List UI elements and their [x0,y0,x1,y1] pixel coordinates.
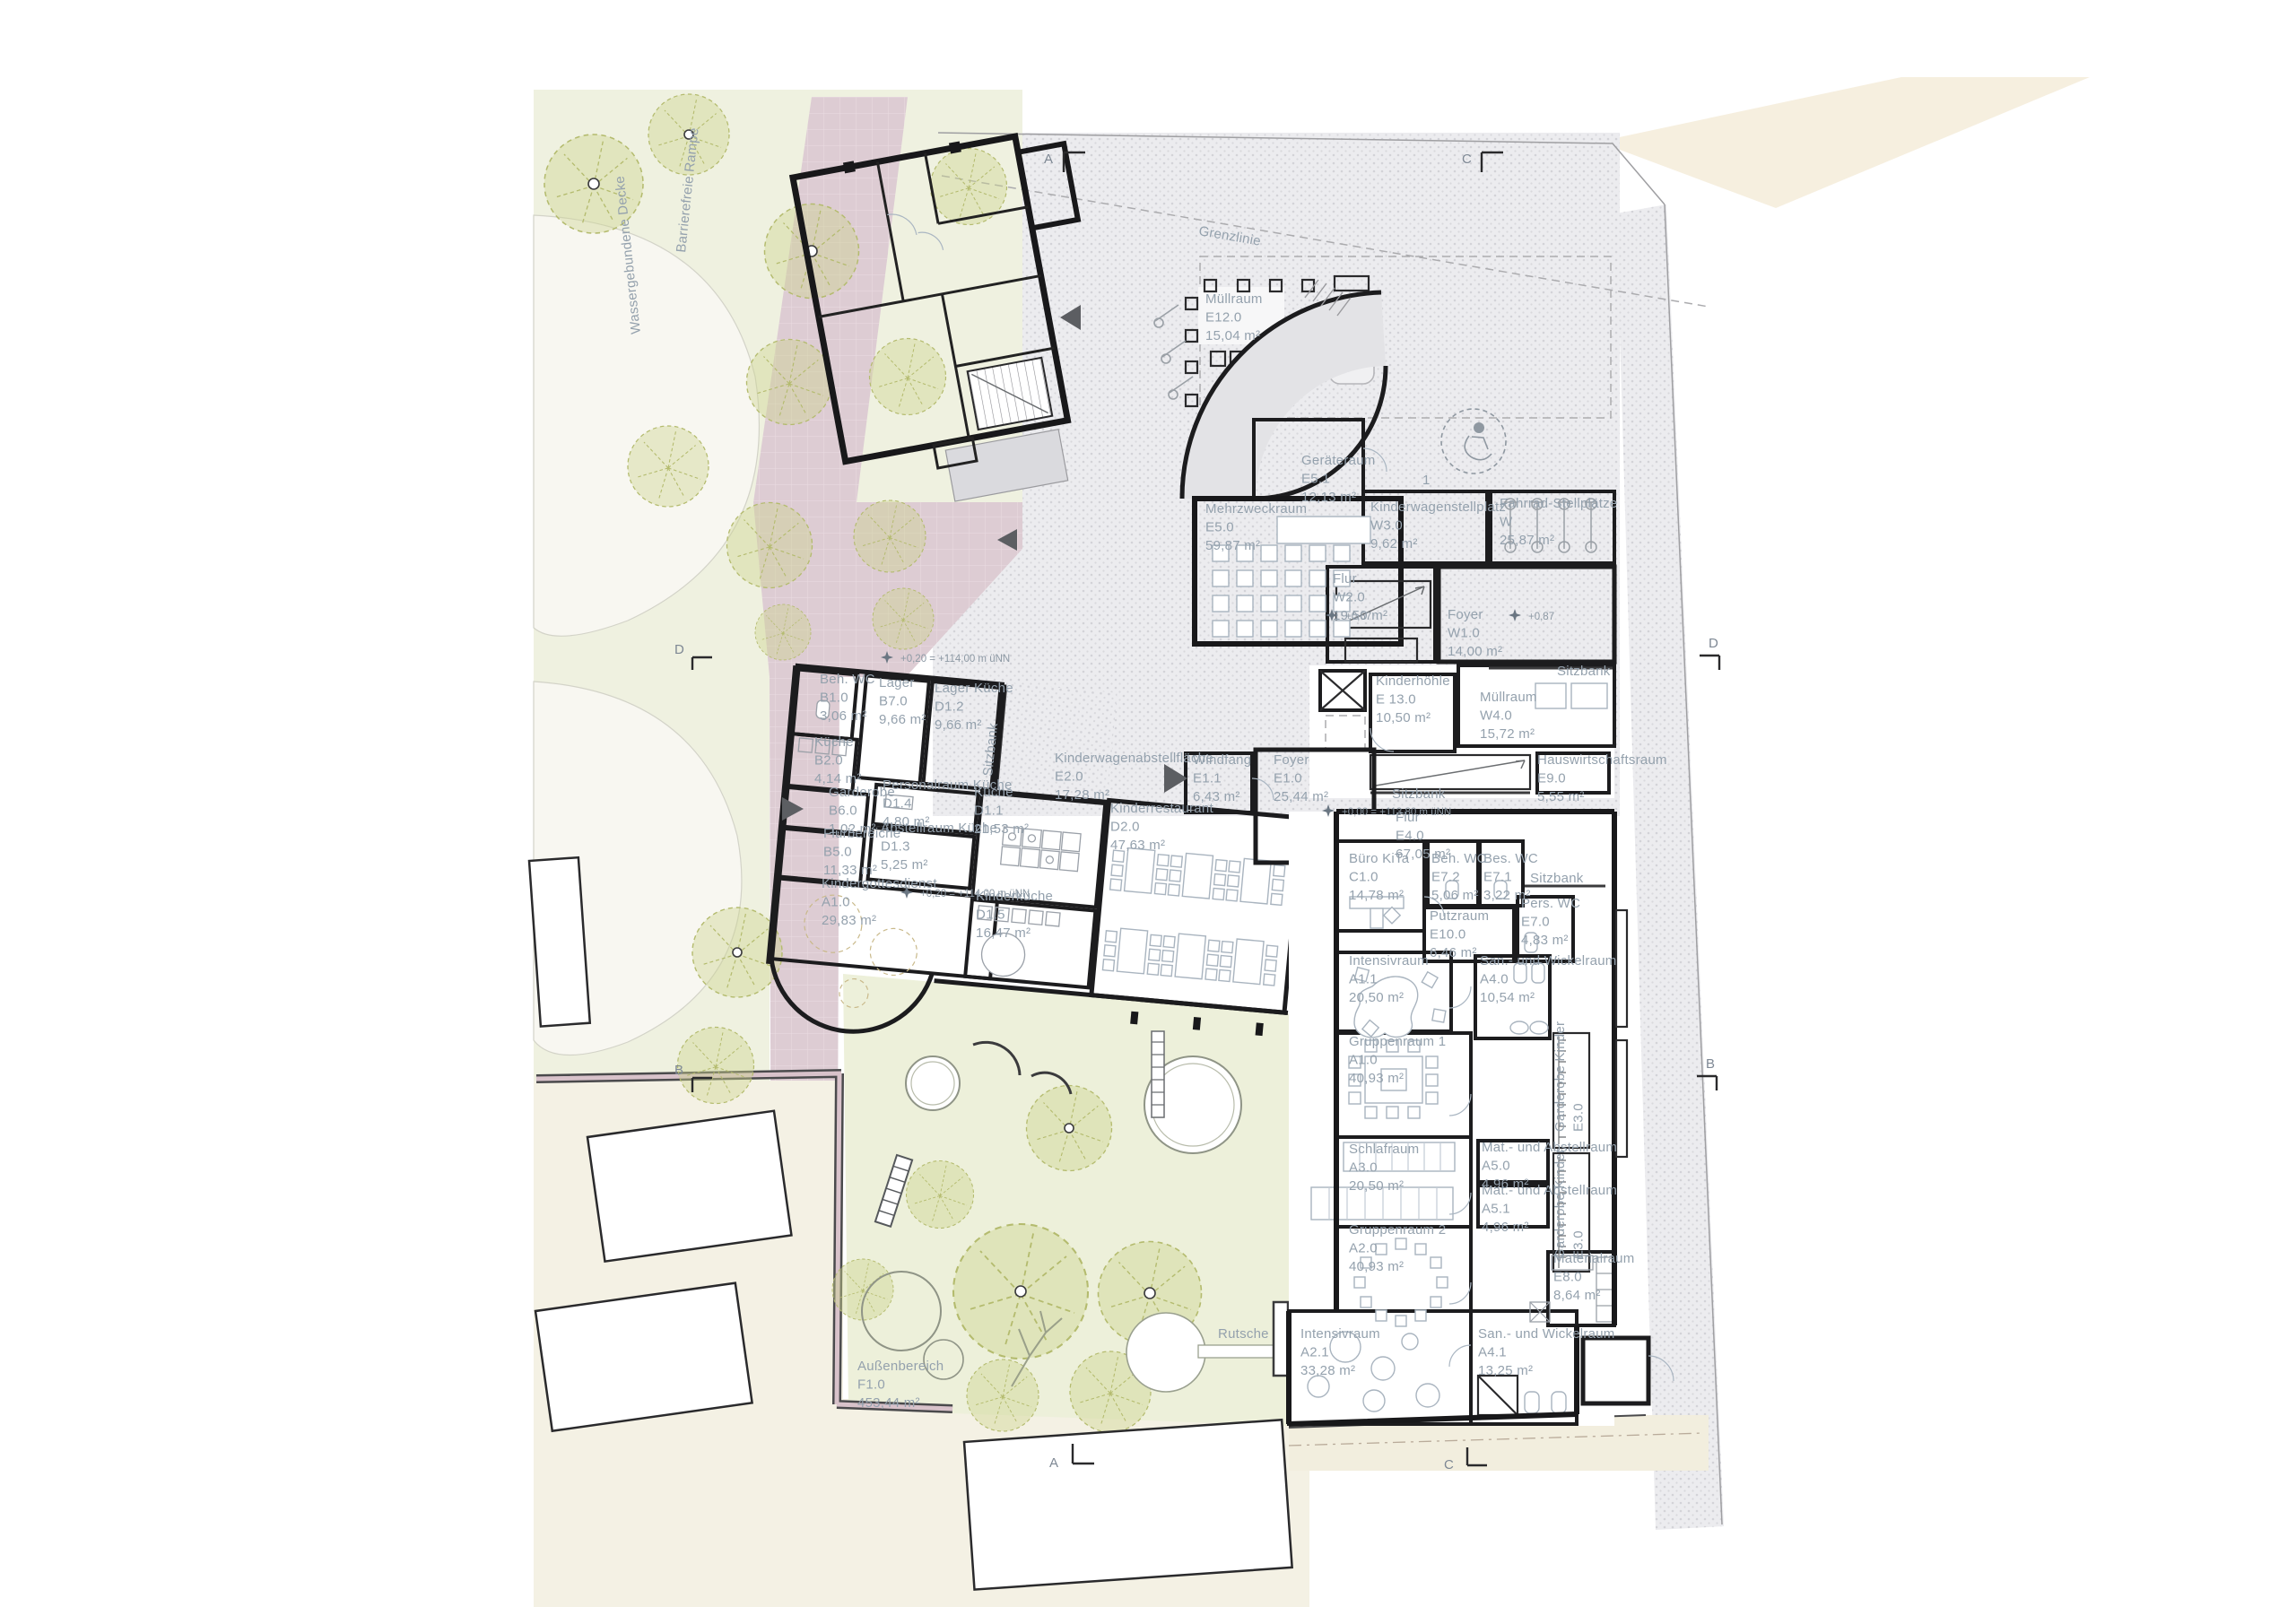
svg-text:+0,87: +0,87 [1528,612,1554,622]
site-label-sitzbank: Sitzbank [1557,664,1611,679]
svg-text:+0,67: +0,67 [1345,612,1371,622]
svg-text:Rutsche: Rutsche [1218,1326,1269,1342]
site-label-1: 1 [1422,473,1431,488]
svg-text:Sitzbank: Sitzbank [1530,871,1584,886]
svg-text:B: B [674,1063,683,1078]
elevation-marker: +0,20 = +114,00 m üNN [900,886,1030,899]
elevation-marker: +0,00 = +113,80 m üNN [1322,804,1451,818]
svg-text:Sitzbank: Sitzbank [1392,786,1446,802]
svg-text:C: C [1462,152,1472,167]
floorplan-svg: GeräteraumE5.112,13 m²MehrzweckraumE5.05… [0,0,2296,1607]
svg-text:+0,00 = +113,80 m üNN: +0,00 = +113,80 m üNN [1342,807,1451,818]
svg-text:1: 1 [1422,473,1431,488]
site-label-sitzbank: Sitzbank [1530,871,1584,886]
svg-text:C: C [1444,1457,1454,1472]
svg-text:Sitzbank: Sitzbank [1557,664,1611,679]
slide [1274,1302,1288,1376]
svg-text:+0,20 = +114,00 m üNN: +0,20 = +114,00 m üNN [900,654,1010,665]
play-mound [1126,1313,1205,1392]
floorplan-canvas: GeräteraumE5.112,13 m²MehrzweckraumE5.05… [0,0,2296,1607]
site-label-sitzbank: Sitzbank [1392,786,1446,802]
svg-text:D: D [1709,636,1718,651]
svg-text:+0,20 = +114,00 m üNN: +0,20 = +114,00 m üNN [920,889,1030,899]
middle-band [1309,665,1614,798]
svg-text:A: A [1044,152,1053,167]
svg-text:D: D [674,642,684,657]
site-label-rutsche: Rutsche [1218,1326,1269,1342]
svg-text:A: A [1049,1455,1058,1471]
elevation-marker: +0,20 = +114,00 m üNN [881,651,1010,665]
svg-text:B: B [1706,1056,1715,1072]
grill-bench [1152,1031,1164,1117]
